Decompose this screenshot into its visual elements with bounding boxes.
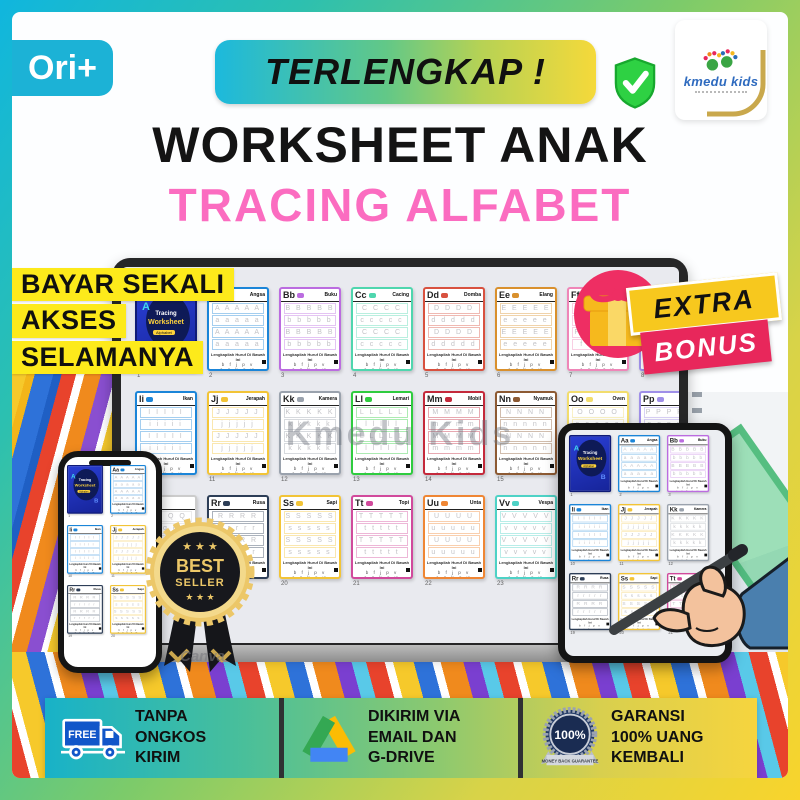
trace-row: t t t t t (670, 608, 705, 615)
worksheet-object-icon (369, 293, 376, 298)
worksheet-page: IiIkanI I I I Ii i i i iI I I I Ii i i i… (67, 525, 103, 574)
worksheet-thumb: TtTopiT T T T Tt t t t tT T T T Tt t t t… (667, 573, 709, 637)
worksheet-letter: Ll (355, 395, 363, 404)
worksheet-thumb: TtTopiT T T T Tt t t t tT T T T Tt t t t… (351, 495, 413, 589)
worksheet-page: BbBukuB B B B Bb b b b bB B B B Bb b b b… (279, 287, 341, 371)
page-number: 1 (67, 514, 103, 520)
page-number: 20 (279, 579, 341, 589)
fill-letters-row: c g k q w (68, 631, 102, 633)
worksheet-corner-mark (606, 554, 609, 557)
worksheet-caption: Lengkapilah Huruf Di Bawah Ini (209, 456, 267, 466)
fill-letters-row: c g k q w (668, 558, 707, 561)
page-number: 3 (279, 371, 341, 381)
trace-row: I I I I I (140, 431, 192, 442)
worksheet-thumb: BbBukuB B B B Bb b b b bB B B B Bb b b b… (667, 435, 709, 499)
worksheet-thumb: JjJerapahJ J J J Jj j j j jJ J J J Jj j … (207, 391, 269, 485)
fill-letters-row: c g k q w (497, 575, 555, 579)
worksheet-object-name: Nyamuk (534, 396, 553, 402)
trace-row: P P P P P (644, 407, 679, 418)
worksheet-letter: Bb (283, 291, 295, 300)
trace-row: B B B B B (284, 327, 336, 338)
worksheet-object-name: Angsa (250, 292, 265, 298)
money-back-badge-icon: 100% MONEY BACK GUARANTEE (539, 706, 601, 770)
worksheet-letter: Aa (621, 437, 629, 443)
trace-row: N N N N N (500, 431, 552, 442)
fill-letters-row: c g k q w (497, 367, 555, 371)
trace-row: V V V V V (500, 511, 552, 522)
worksheet-object-icon (118, 528, 122, 531)
worksheet-object-name: Rusa (253, 500, 265, 506)
trace-row: a a a a a (113, 495, 143, 501)
worksheet-slot: IiIkanI I I I Ii i i i iI I I I Ii i i i… (569, 504, 613, 570)
trace-row: S S S S S (621, 600, 656, 607)
worksheet-corner-mark (262, 360, 266, 364)
trace-row: I I I I I (140, 407, 192, 418)
extra-label: EXTRA (652, 283, 756, 324)
worksheet-object-name: Vespa (539, 500, 553, 506)
worksheet-letter: Dd (427, 291, 439, 300)
worksheet-card-header: AaAngsa (111, 466, 145, 474)
trace-row: T T T T T (670, 584, 705, 591)
worksheet-thumb: SsSapiS S S S Ss s s s sS S S S Ss s s s… (279, 495, 341, 589)
ori-badge: Ori+ (12, 40, 113, 96)
trace-row: B B B B B (284, 303, 336, 314)
page-number: 1 (569, 492, 611, 499)
worksheet-object-name: Mobil (468, 396, 481, 402)
fill-letters-row: c g k q w (570, 627, 609, 630)
trace-row: J J J J J (212, 431, 264, 442)
trace-row: t t t t t (356, 547, 408, 558)
worksheet-object-icon (441, 293, 448, 298)
worksheet-corner-mark (704, 485, 707, 488)
tablet-worksheet-grid: ATracingWorksheetAlphabetB1AaAngsaA A A … (569, 435, 721, 639)
worksheet-corner-mark (550, 568, 554, 572)
worksheet-corner-mark (334, 360, 338, 364)
worksheet-page: AaAngsaA A A A Aa a a a aA A A A Aa a a … (618, 435, 660, 492)
worksheet-corner-mark (478, 464, 482, 468)
page-number: 4 (351, 371, 413, 381)
trace-row: R R R R R (70, 594, 100, 600)
worksheet-object-name: Jerapah (246, 396, 265, 402)
worksheet-corner-mark (334, 568, 338, 572)
trace-row: I I I I I (572, 515, 607, 522)
page-number: 12 (667, 561, 709, 568)
worksheet-letter: Nn (499, 395, 511, 404)
worksheet-thumb: CcCacingC C C C Cc c c c cC C C C Cc c c… (351, 287, 413, 381)
worksheet-letter: Vv (499, 499, 510, 508)
worksheet-slot: EeElangE E E E Ee e e e eE E E E Ee e e … (495, 287, 557, 383)
worksheet-slot: BbBukuB B B B Bb b b b bB B B B Bb b b b… (667, 435, 711, 501)
worksheet-caption: Lengkapilah Huruf Di Bawah Ini (668, 617, 707, 624)
worksheet-corner-mark (550, 360, 554, 364)
fill-letters-row: c g k q w (353, 471, 411, 475)
feature-line: DIKIRIM VIA (368, 707, 460, 728)
worksheet-caption: Lengkapilah Huruf Di Bawah Ini (353, 352, 411, 362)
trace-row: a a a a a (621, 454, 656, 461)
trace-row: r r r r r (70, 601, 100, 607)
worksheet-object-icon (73, 528, 77, 531)
banner-label: TERLENGKAP ! (265, 51, 546, 93)
trace-row: j j j j j (212, 443, 264, 454)
trace-row: s s s s s (284, 547, 336, 558)
worksheet-object-name: Rusa (94, 588, 101, 591)
worksheet-caption: Lengkapilah Huruf Di Bawah Ini (570, 548, 609, 555)
worksheet-slot: UuUntaU U U U Uu u u u uU U U U Uu u u u… (423, 495, 485, 591)
worksheet-card-header: NnNyamuk (497, 393, 555, 406)
trace-row: I I I I I (70, 548, 100, 554)
worksheet-thumb: MmMobilM M M M Mm m m m mM M M M Mm m m … (423, 391, 485, 485)
worksheet-letter: Jj (112, 527, 116, 532)
worksheet-corner-mark (142, 507, 144, 509)
worksheet-row: ATracingWorksheetAlphabetB1AaAngsaA A A … (569, 435, 721, 501)
cover-sub-chip: Alphabet (77, 490, 90, 493)
worksheet-caption: Lengkapilah Huruf Di Bawah Ini (425, 560, 483, 570)
worksheet-card-header: IiIkan (570, 505, 609, 514)
page-number: 3 (667, 492, 709, 499)
feature-line: 100% UANG (611, 728, 703, 749)
worksheet-card-header: VvVespa (497, 497, 555, 510)
worksheet-slot: RrRusaR R R R Rr r r r rR R R R Rr r r r… (569, 573, 613, 639)
worksheet-object-name: Rusa (600, 576, 608, 580)
worksheet-object-icon (146, 397, 153, 402)
trace-row: M M M M M (428, 407, 480, 418)
cover-title-line: Worksheet (68, 484, 102, 488)
trace-row: l l l l l (356, 419, 408, 430)
trace-row: j j j j j (113, 541, 143, 547)
cover-sub-chip: Alphabet (581, 464, 596, 467)
trace-row: b b b b b (670, 470, 705, 477)
worksheet-corner-mark (406, 464, 410, 468)
trace-row: J J J J J (621, 531, 656, 538)
trace-row: I I I I I (572, 531, 607, 538)
worksheet-letter: Ee (499, 291, 510, 300)
worksheet-page: KkKameraK K K K Kk k k k kK K K K Kk k k… (667, 504, 709, 561)
worksheet-card-header: MmMobil (425, 393, 483, 406)
worksheet-thumb: UuUntaU U U U Uu u u u uU U U U Uu u u u… (423, 495, 485, 589)
page-number: 20 (618, 630, 660, 637)
worksheet-object-name: Lemari (393, 396, 409, 402)
worksheet-object-name: Angsa (647, 438, 657, 442)
feature-bar: FREE TANPA ONGKOS KIRIM (45, 698, 757, 778)
trace-row: K K K K K (284, 431, 336, 442)
page-number: 21 (351, 579, 413, 589)
svg-text:BEST: BEST (176, 556, 224, 576)
trace-row: i i i i i (140, 419, 192, 430)
trace-row: R R R R R (572, 600, 607, 607)
trace-row: u u u u u (428, 523, 480, 534)
worksheet-page: IiIkanI I I I Ii i i i iI I I I Ii i i i… (569, 504, 611, 561)
fill-letters-row: c g k q w (425, 471, 483, 475)
worksheet-page: RrRusaR R R R Rr r r r rR R R R Rr r r r… (569, 573, 611, 630)
worksheet-object-icon (627, 508, 632, 511)
trace-row: v v v v v (500, 523, 552, 534)
worksheet-thumb: VvVespaV V V V Vv v v v vV V V V Vv v v … (495, 495, 557, 589)
trace-row: s s s s s (621, 592, 656, 599)
fill-letters-row: c g k q w (619, 558, 658, 561)
trace-row: n n n n n (500, 419, 552, 430)
trace-row: c c c c c (356, 339, 408, 350)
worksheet-object-name: Topi (399, 500, 409, 506)
worksheet-object-icon (296, 501, 303, 506)
trace-row: R R R R R (70, 608, 100, 614)
worksheet-card-header: RrRusa (570, 574, 609, 583)
trace-row: r r r r r (70, 615, 100, 621)
worksheet-page: NnNyamukN N N N Nn n n n nN N N N Nn n n… (495, 391, 557, 475)
worksheet-thumb: KkKameraK K K K Kk k k k kK K K K Kk k k… (279, 391, 341, 485)
trace-row: J J J J J (212, 407, 264, 418)
trace-row: S S S S S (621, 584, 656, 591)
trace-row: U U U U U (428, 535, 480, 546)
worksheet-thumb: KkKameraK K K K Kk k k k kK K K K Kk k k… (667, 504, 709, 568)
worksheet-slot: KkKameraK K K K Kk k k k kK K K K Kk k k… (279, 391, 341, 487)
worksheet-object-icon (297, 397, 304, 402)
cover-page-thumb: ATracingWorksheetAlphabetB (67, 465, 103, 514)
trace-row: u u u u u (428, 547, 480, 558)
fill-letters-row: c g k q w (281, 575, 339, 579)
worksheet-corner-mark (262, 568, 266, 572)
fill-letters-row: c g k q w (569, 367, 627, 371)
worksheet-object-icon (120, 588, 124, 591)
trace-row: L L L L L (356, 431, 408, 442)
worksheet-caption: Lengkapilah Huruf Di Bawah Ini (281, 560, 339, 570)
worksheet-card-header: SsSapi (281, 497, 339, 510)
trace-row: S S S S S (284, 535, 336, 546)
trace-row: k k k k k (670, 539, 705, 546)
fill-letters-row: c g k q w (68, 571, 102, 573)
worksheet-object-icon (76, 588, 80, 591)
badge-value: 100% (554, 728, 585, 742)
worksheet-letter: Uu (427, 499, 439, 508)
fill-letters-row: c g k q w (619, 489, 658, 492)
truck-free-label: FREE (68, 729, 96, 741)
trace-row: S S S S S (284, 511, 336, 522)
worksheet-card-header: SsSapi (619, 574, 658, 583)
worksheet-object-icon (580, 577, 585, 580)
worksheet-card-header: BbBuku (668, 436, 707, 445)
worksheet-object-icon (441, 501, 448, 506)
page-number: 2 (618, 492, 660, 499)
worksheet-object-name: Ikan (183, 396, 193, 402)
trace-row: T T T T T (670, 600, 705, 607)
feature-text: GARANSI 100% UANG KEMBALI (611, 707, 703, 769)
bonus-label: BONUS (653, 326, 760, 368)
page-number: 23 (495, 579, 557, 589)
trace-row: d d d d d (428, 315, 480, 326)
trace-row: V V V V V (500, 535, 552, 546)
trace-row: r r r r r (572, 592, 607, 599)
feature-free-shipping: FREE TANPA ONGKOS KIRIM (45, 698, 279, 778)
promo-image: Ori+ TERLENGKAP ! (0, 0, 800, 800)
trace-row: K K K K K (670, 515, 705, 522)
worksheet-slot: RrRusaR R R R Rr r r r rR R R R Rr r r r… (67, 585, 105, 643)
worksheet-slot: DdDombaD D D D Dd d d d dD D D D Dd d d … (423, 287, 485, 383)
trace-row: m m m m m (428, 443, 480, 454)
worksheet-card-header: BbBuku (281, 289, 339, 302)
worksheet-object-name: Ikan (602, 507, 609, 511)
worksheet-slot: KkKameraK K K K Kk k k k kK K K K Kk k k… (667, 504, 711, 570)
worksheet-object-icon (576, 508, 581, 511)
fill-letters-row: c g k q w (425, 367, 483, 371)
worksheet-caption: Lengkapilah Huruf Di Bawah Ini (497, 456, 555, 466)
worksheet-object-icon (513, 397, 520, 402)
ori-label: Ori+ (28, 49, 97, 88)
worksheet-object-icon (677, 577, 682, 580)
trace-row: s s s s s (284, 523, 336, 534)
worksheet-object-name: Topi (700, 576, 707, 580)
worksheet-letter: Mm (427, 395, 443, 404)
worksheet-object-name: Jerapah (644, 507, 657, 511)
worksheet-corner-mark (190, 464, 194, 468)
trace-row: k k k k k (284, 419, 336, 430)
worksheet-page: TtTopiT T T T Tt t t t tT T T T Tt t t t… (351, 495, 413, 579)
pay-once-block: BAYAR SEKALI AKSES SELAMANYA (12, 268, 234, 377)
fill-letters-row: c g k q w (570, 558, 609, 561)
worksheet-thumb: RrRusaR R R R Rr r r r rR R R R Rr r r r… (67, 585, 103, 640)
worksheet-letter: Kk (670, 506, 678, 512)
terlengkap-banner: TERLENGKAP ! (215, 40, 596, 104)
worksheet-letter: Ss (283, 499, 294, 508)
feature-line: GARANSI (611, 707, 703, 728)
page-number: 11 (207, 475, 269, 485)
trace-row: A A A A A (621, 446, 656, 453)
worksheet-slot: VvVespaV V V V Vv v v v vV V V V Vv v v … (495, 495, 557, 591)
worksheet-object-name: Buku (698, 438, 707, 442)
worksheet-object-icon (221, 397, 228, 402)
worksheet-thumb: NnNyamukN N N N Nn n n n nN N N N Nn n n… (495, 391, 557, 485)
free-truck-icon: FREE (61, 712, 125, 764)
worksheet-thumb: JjJerapahJ J J J Jj j j j jJ J J J Jj j … (618, 504, 660, 568)
page-number: 7 (567, 371, 629, 381)
trace-row: r r r r r (572, 608, 607, 615)
gold-arc-decoration (707, 50, 767, 120)
worksheet-row: RrRusaR R R R Rr r r r rR R R R Rr r r r… (569, 573, 721, 639)
fill-letters-row: c g k q w (353, 367, 411, 371)
trace-row: b b b b b (670, 454, 705, 461)
trace-row: i i i i i (572, 539, 607, 546)
worksheet-corner-mark (655, 485, 658, 488)
worksheet-letter: Ss (112, 587, 118, 592)
worksheet-corner-mark (655, 554, 658, 557)
trace-row: A A A A A (113, 488, 143, 494)
worksheet-card-header: Pp (641, 393, 679, 406)
svg-text:SELLER: SELLER (175, 577, 224, 589)
worksheet-thumb: LlLemariL L L L Ll l l l lL L L L Ll l l… (351, 391, 413, 485)
worksheet-caption: Lengkapilah Huruf Di Bawah Ini (668, 548, 707, 555)
worksheet-slot: SsSapiS S S S Ss s s s sS S S S Ss s s s… (279, 495, 341, 591)
worksheet-object-name: Cacing (392, 292, 409, 298)
trace-row: D D D D D (428, 327, 480, 338)
worksheet-page: SsSapiS S S S Ss s s s sS S S S Ss s s s… (618, 573, 660, 630)
trace-row: D D D D D (428, 303, 480, 314)
worksheet-letter: Rr (69, 587, 75, 592)
worksheet-letter: Kk (283, 395, 295, 404)
fill-letters-row: c g k q w (353, 575, 411, 579)
worksheet-object-name: Kamera (319, 396, 337, 402)
trace-row: s s s s s (113, 615, 143, 621)
trace-row: K K K K K (670, 531, 705, 538)
content-area: Ori+ TERLENGKAP ! (12, 12, 788, 778)
trace-row: N N N N N (500, 407, 552, 418)
trace-row: k k k k k (284, 443, 336, 454)
svg-text:★ ★ ★: ★ ★ ★ (182, 541, 218, 553)
worksheet-caption: Lengkapilah Huruf Di Bawah Ini (353, 456, 411, 466)
trace-row: t t t t t (670, 592, 705, 599)
worksheet-slot: BbBukuB B B B Bb b b b bB B B B Bb b b b… (279, 287, 341, 383)
worksheet-row: IiIkanI I I I Ii i i i iI I I I Ii i i i… (569, 504, 721, 570)
worksheet-slot: IiIkanI I I I Ii i i i iI I I I Ii i i i… (67, 525, 105, 583)
worksheet-letter: Jj (211, 395, 219, 404)
worksheet-letter: Ss (621, 575, 628, 581)
worksheet-object-name: Kamera (694, 507, 706, 511)
worksheet-page: JjJerapahJ J J J Jj j j j jJ J J J Jj j … (207, 391, 269, 475)
worksheet-object-name: Domba (464, 292, 481, 298)
page-number: 14 (423, 475, 485, 485)
trace-row: j j j j j (621, 523, 656, 530)
trace-row: A A A A A (113, 474, 143, 480)
worksheet-card-header: UuUnta (425, 497, 483, 510)
worksheet-corner-mark (406, 360, 410, 364)
worksheet-letter: Ii (69, 527, 72, 532)
worksheet-page: RrRusaR R R R Rr r r r rR R R R Rr r r r… (67, 585, 103, 634)
worksheet-card-header: IiIkan (137, 393, 195, 406)
cover-title-line: Worksheet (570, 457, 609, 462)
worksheet-slot: LlLemariL L L L Ll l l l lL L L L Ll l l… (351, 391, 413, 487)
page-subtitle: TRACING ALFABET (12, 178, 788, 232)
page-number: 10 (569, 561, 611, 568)
trace-row: L L L L L (356, 407, 408, 418)
fill-letters-row: c g k q w (281, 471, 339, 475)
worksheet-card-header: AaAngsa (619, 436, 658, 445)
worksheet-thumb: EeElangE E E E Ee e e e eE E E E Ee e e … (495, 287, 557, 381)
trace-row: k k k k k (670, 523, 705, 530)
worksheet-thumb: IiIkanI I I I Ii i i i iI I I I Ii i i i… (67, 525, 103, 580)
trace-row: B B B B B (670, 462, 705, 469)
trace-row: R R R R R (572, 584, 607, 591)
fill-letters-row: c g k q w (497, 471, 555, 475)
worksheet-slot: ATracingWorksheetAlphabetB1 (67, 465, 105, 523)
worksheet-caption: Lengkapilah Huruf Di Bawah Ini (425, 456, 483, 466)
worksheet-page: AaAngsaA A A A Aa a a a aA A A A Aa a a … (110, 465, 146, 514)
worksheet-object-icon (223, 501, 230, 506)
worksheet-caption: Lengkapilah Huruf Di Bawah Ini (353, 560, 411, 570)
worksheet-thumb: RrRusaR R R R Rr r r r rR R R R Rr r r r… (569, 573, 611, 637)
page-number: 22 (423, 579, 485, 589)
page-number: 5 (423, 371, 485, 381)
worksheet-object-icon (365, 397, 372, 402)
trace-row: i i i i i (70, 541, 100, 547)
trace-row: b b b b b (284, 339, 336, 350)
worksheet-card-header: LlLemari (353, 393, 411, 406)
trace-row: v v v v v (500, 547, 552, 558)
worksheet-object-name: Buku (325, 292, 338, 298)
worksheet-card-header: TtTopi (353, 497, 411, 510)
worksheet-letter: Cc (355, 291, 367, 300)
worksheet-thumb: IiIkanI I I I Ii i i i iI I I I Ii i i i… (569, 504, 611, 568)
worksheet-object-name: Sapi (326, 500, 337, 506)
trace-row: n n n n n (500, 443, 552, 454)
trace-row: c c c c c (356, 315, 408, 326)
trace-row: b b b b b (284, 315, 336, 326)
trace-row: j j j j j (113, 555, 143, 561)
svg-text:★ ★ ★: ★ ★ ★ (185, 592, 214, 602)
worksheet-card-header: JjJerapah (619, 505, 658, 514)
worksheet-page: KkKameraK K K K Kk k k k kK K K K Kk k k… (279, 391, 341, 475)
cover-letter-b: B (94, 498, 98, 504)
trace-row: d d d d d (428, 339, 480, 350)
worksheet-object-icon (445, 397, 452, 402)
worksheet-letter: Rr (572, 575, 579, 581)
worksheet-letter: Pp (643, 395, 655, 404)
